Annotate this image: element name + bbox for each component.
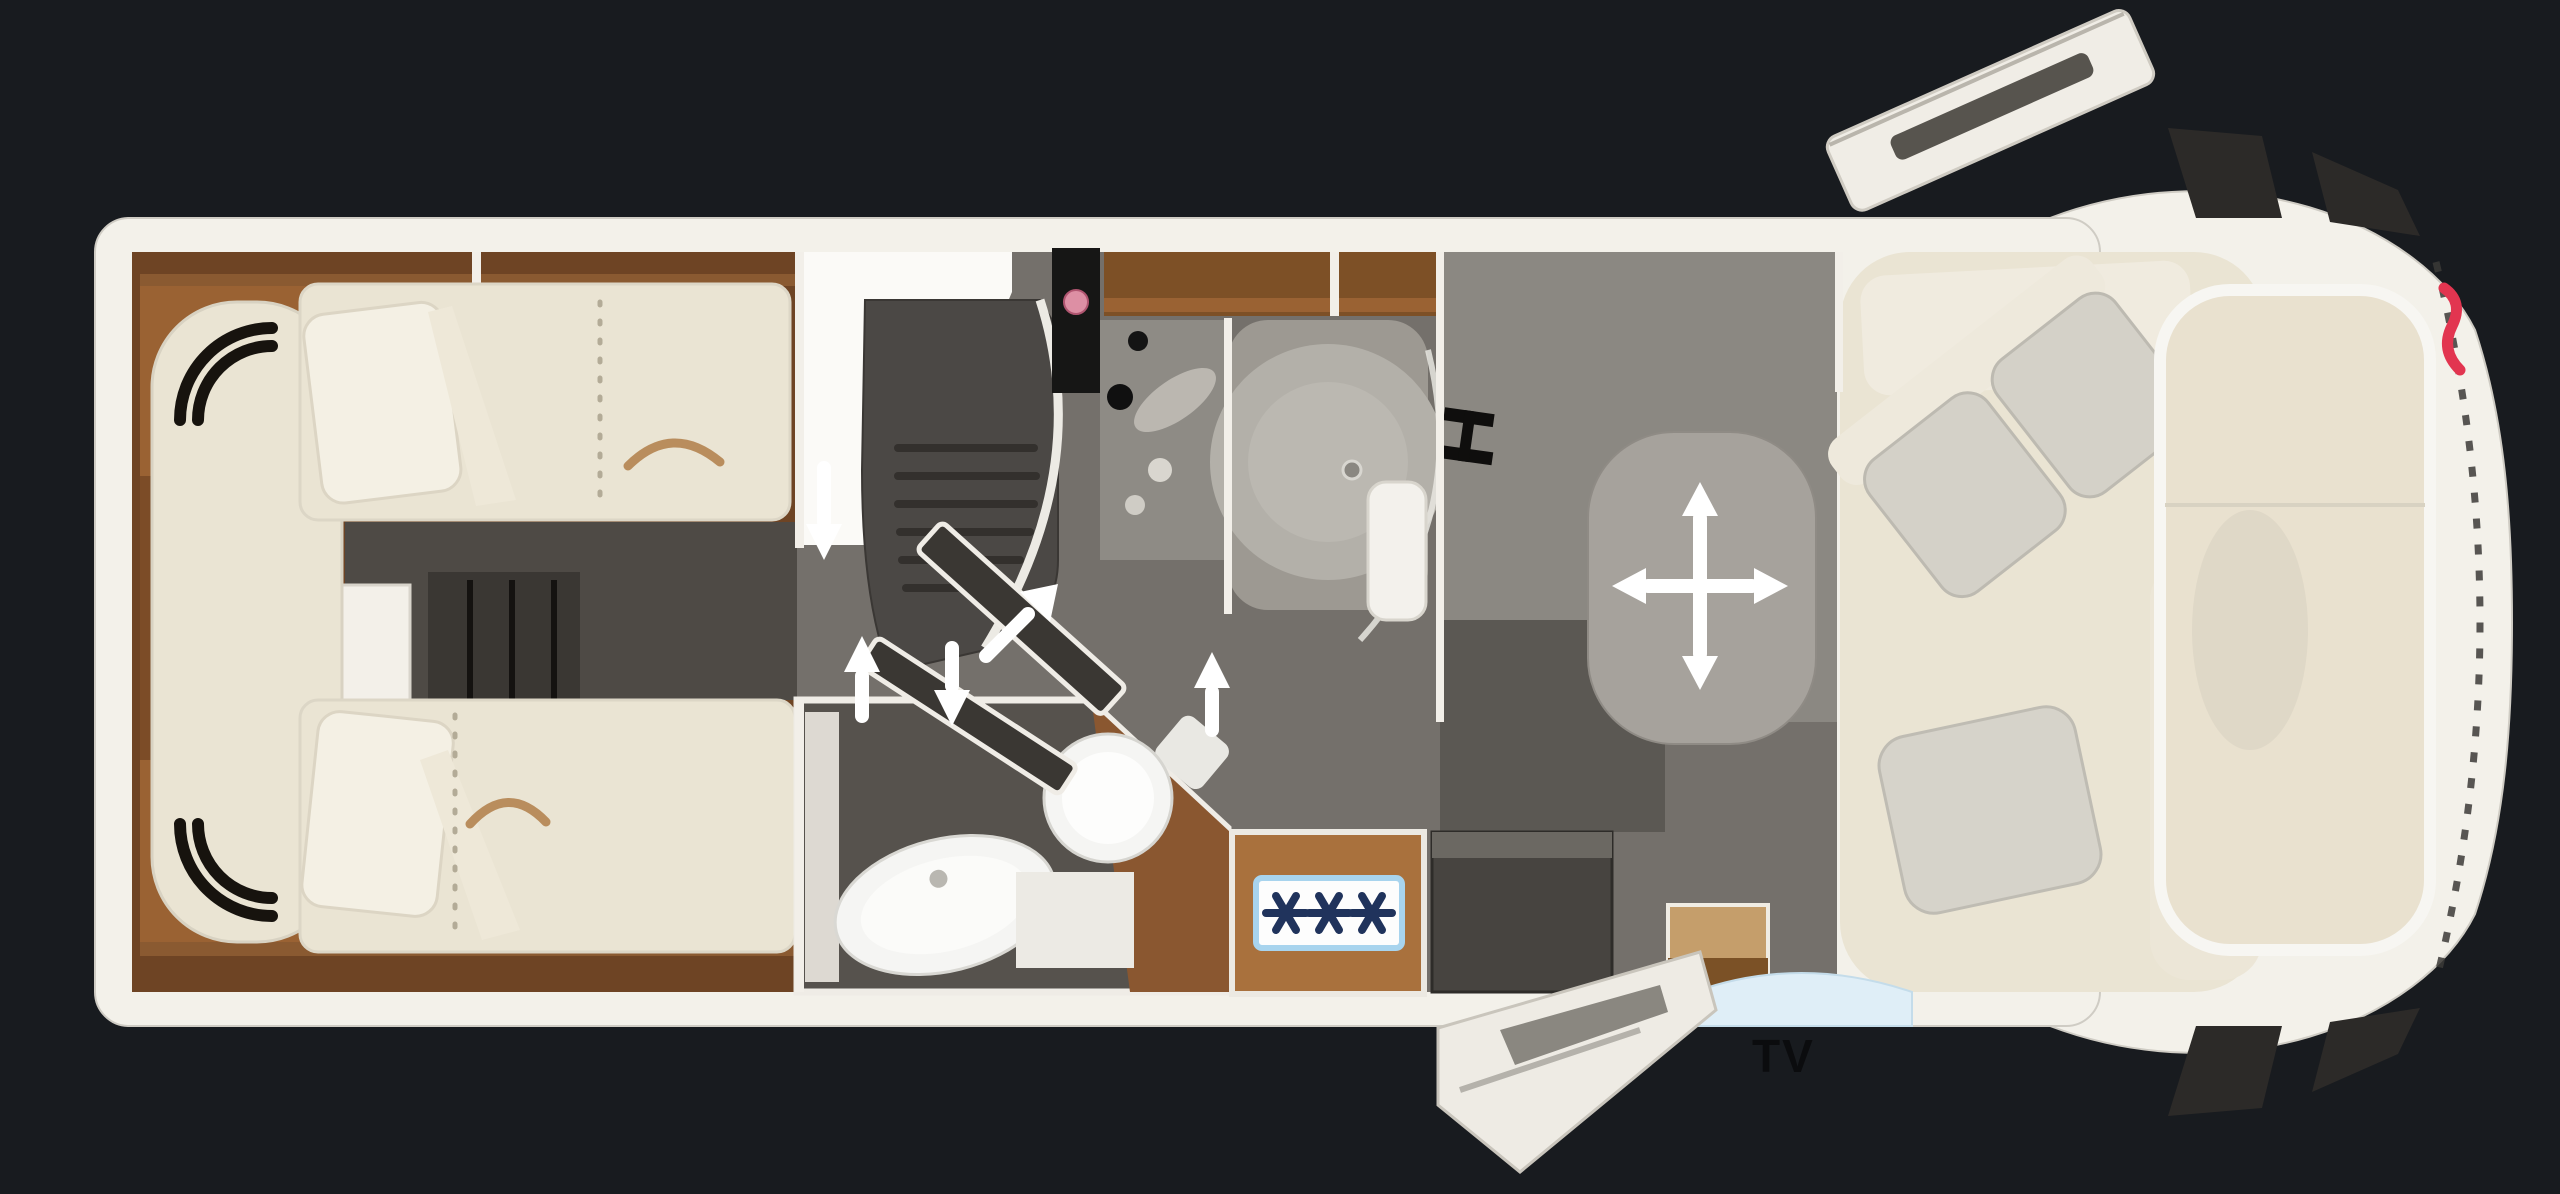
locker-mullion [472,252,481,286]
twin-bed-top [300,284,790,520]
dish-item [1125,495,1145,515]
tv-label: TV [1752,1030,1815,1082]
wall-shower-wardrobe [1436,252,1444,722]
windshield-reflection [2192,510,2308,750]
washroom-side-panel [805,712,839,982]
bed-pillow [300,709,456,918]
sink-counter [1100,320,1230,560]
seat-cushion [1873,701,2106,919]
fridge-top-strip [1432,832,1612,858]
wall-lounge-entry [1835,252,1843,392]
floorplan-svg: TV [0,0,2560,1194]
wall-bedroom-kitchen [795,252,804,548]
wall-bedroom-washroom [795,700,804,992]
dinette-table [1588,432,1816,744]
sofa-lower-seat [1873,701,2106,919]
tall-black-cabinet [1052,248,1100,393]
shower-drain [1343,461,1361,479]
basin-counter [1016,872,1134,968]
fridge-cabinet [1432,832,1612,992]
kitchen-sink-counter [1100,320,1230,560]
folding-seat [1368,482,1426,620]
sink-drain [1107,384,1133,410]
faucet [1128,331,1148,351]
wall-kitchen-shower [1224,318,1232,614]
shower-cabin [1210,320,1446,640]
floorplan-stage: TV [0,0,2560,1194]
locker-mullion [1330,252,1339,316]
dish-item [1148,458,1172,482]
rear-bedroom [140,252,797,992]
twin-bed-bottom [300,700,795,952]
control-knob-red [1064,290,1088,314]
stove-cabinet [1232,832,1424,994]
